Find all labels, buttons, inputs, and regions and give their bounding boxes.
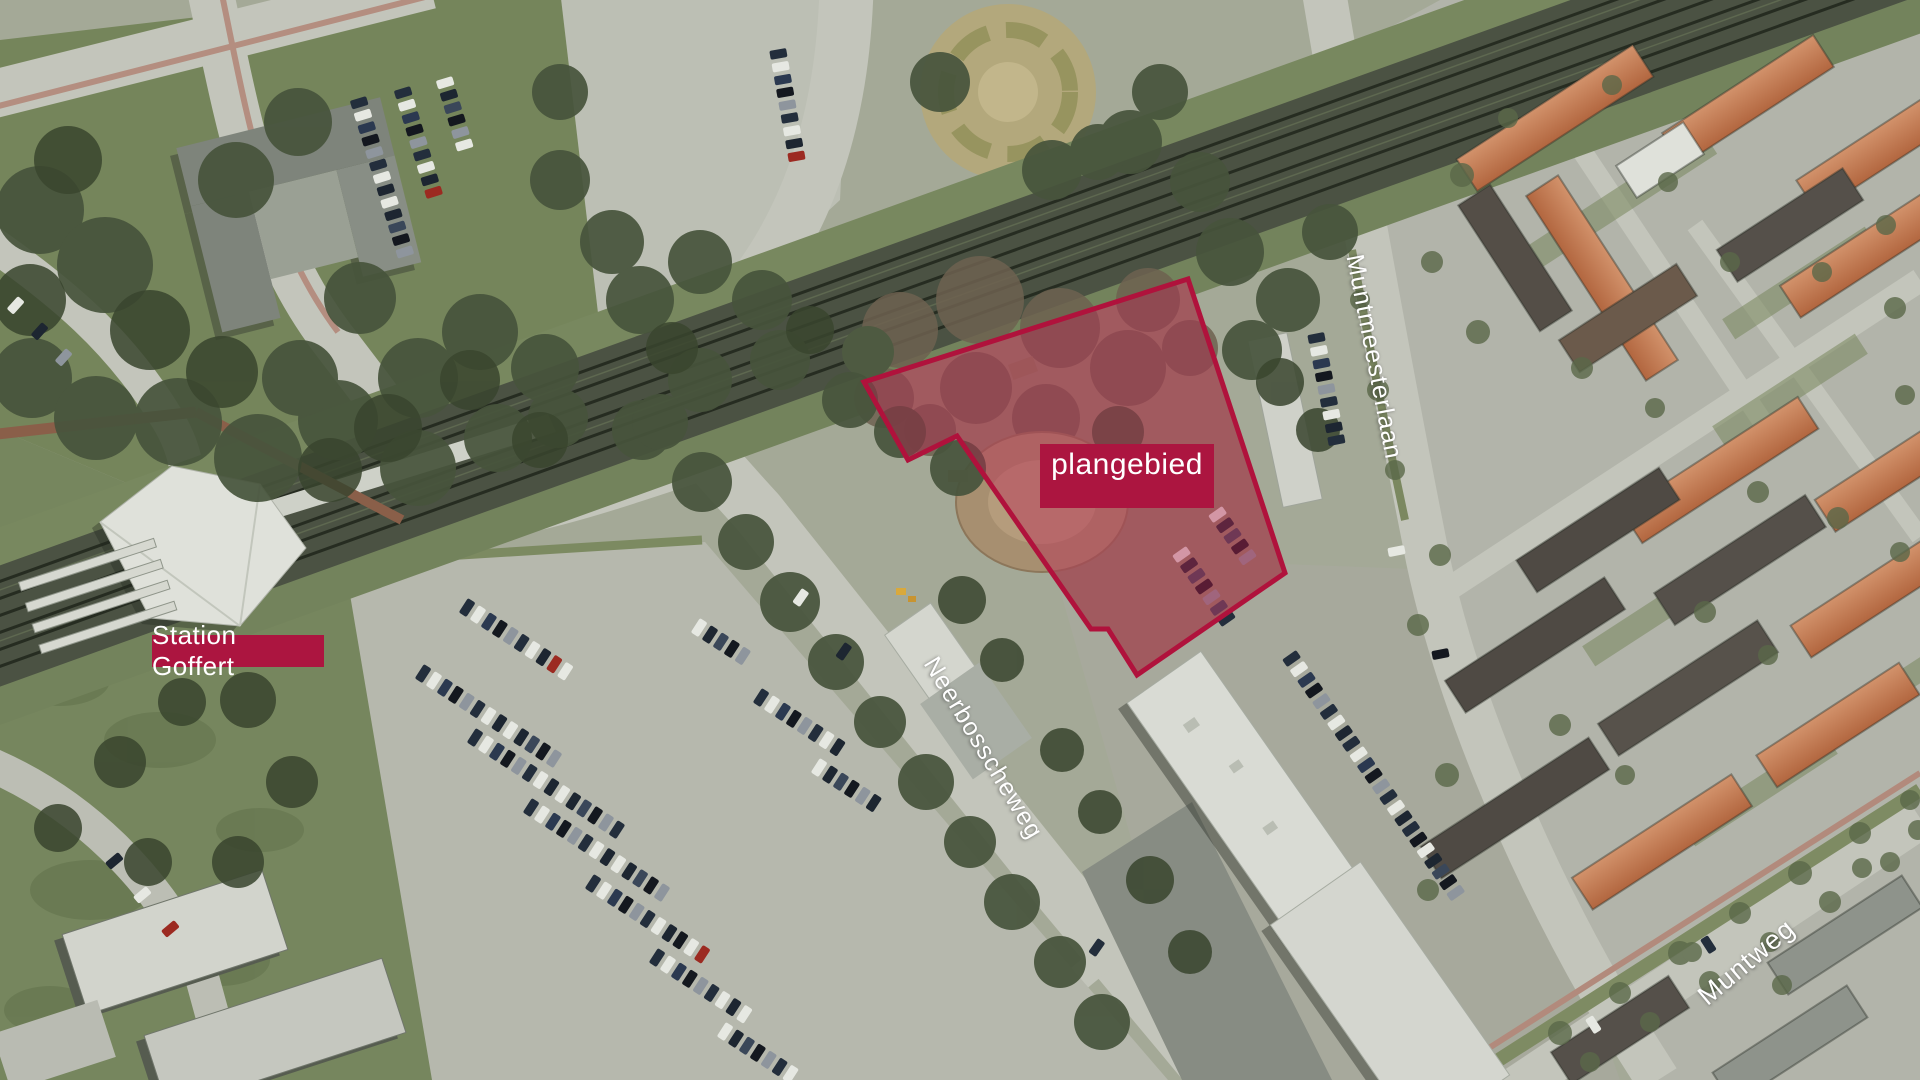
station-goffert-label: Station Goffert xyxy=(152,635,324,667)
plan-area-label: plangebied xyxy=(1040,444,1214,508)
aerial-photo xyxy=(0,0,1920,1080)
aerial-map-screenshot: plangebied Station Goffert Muntmeesterla… xyxy=(0,0,1920,1080)
